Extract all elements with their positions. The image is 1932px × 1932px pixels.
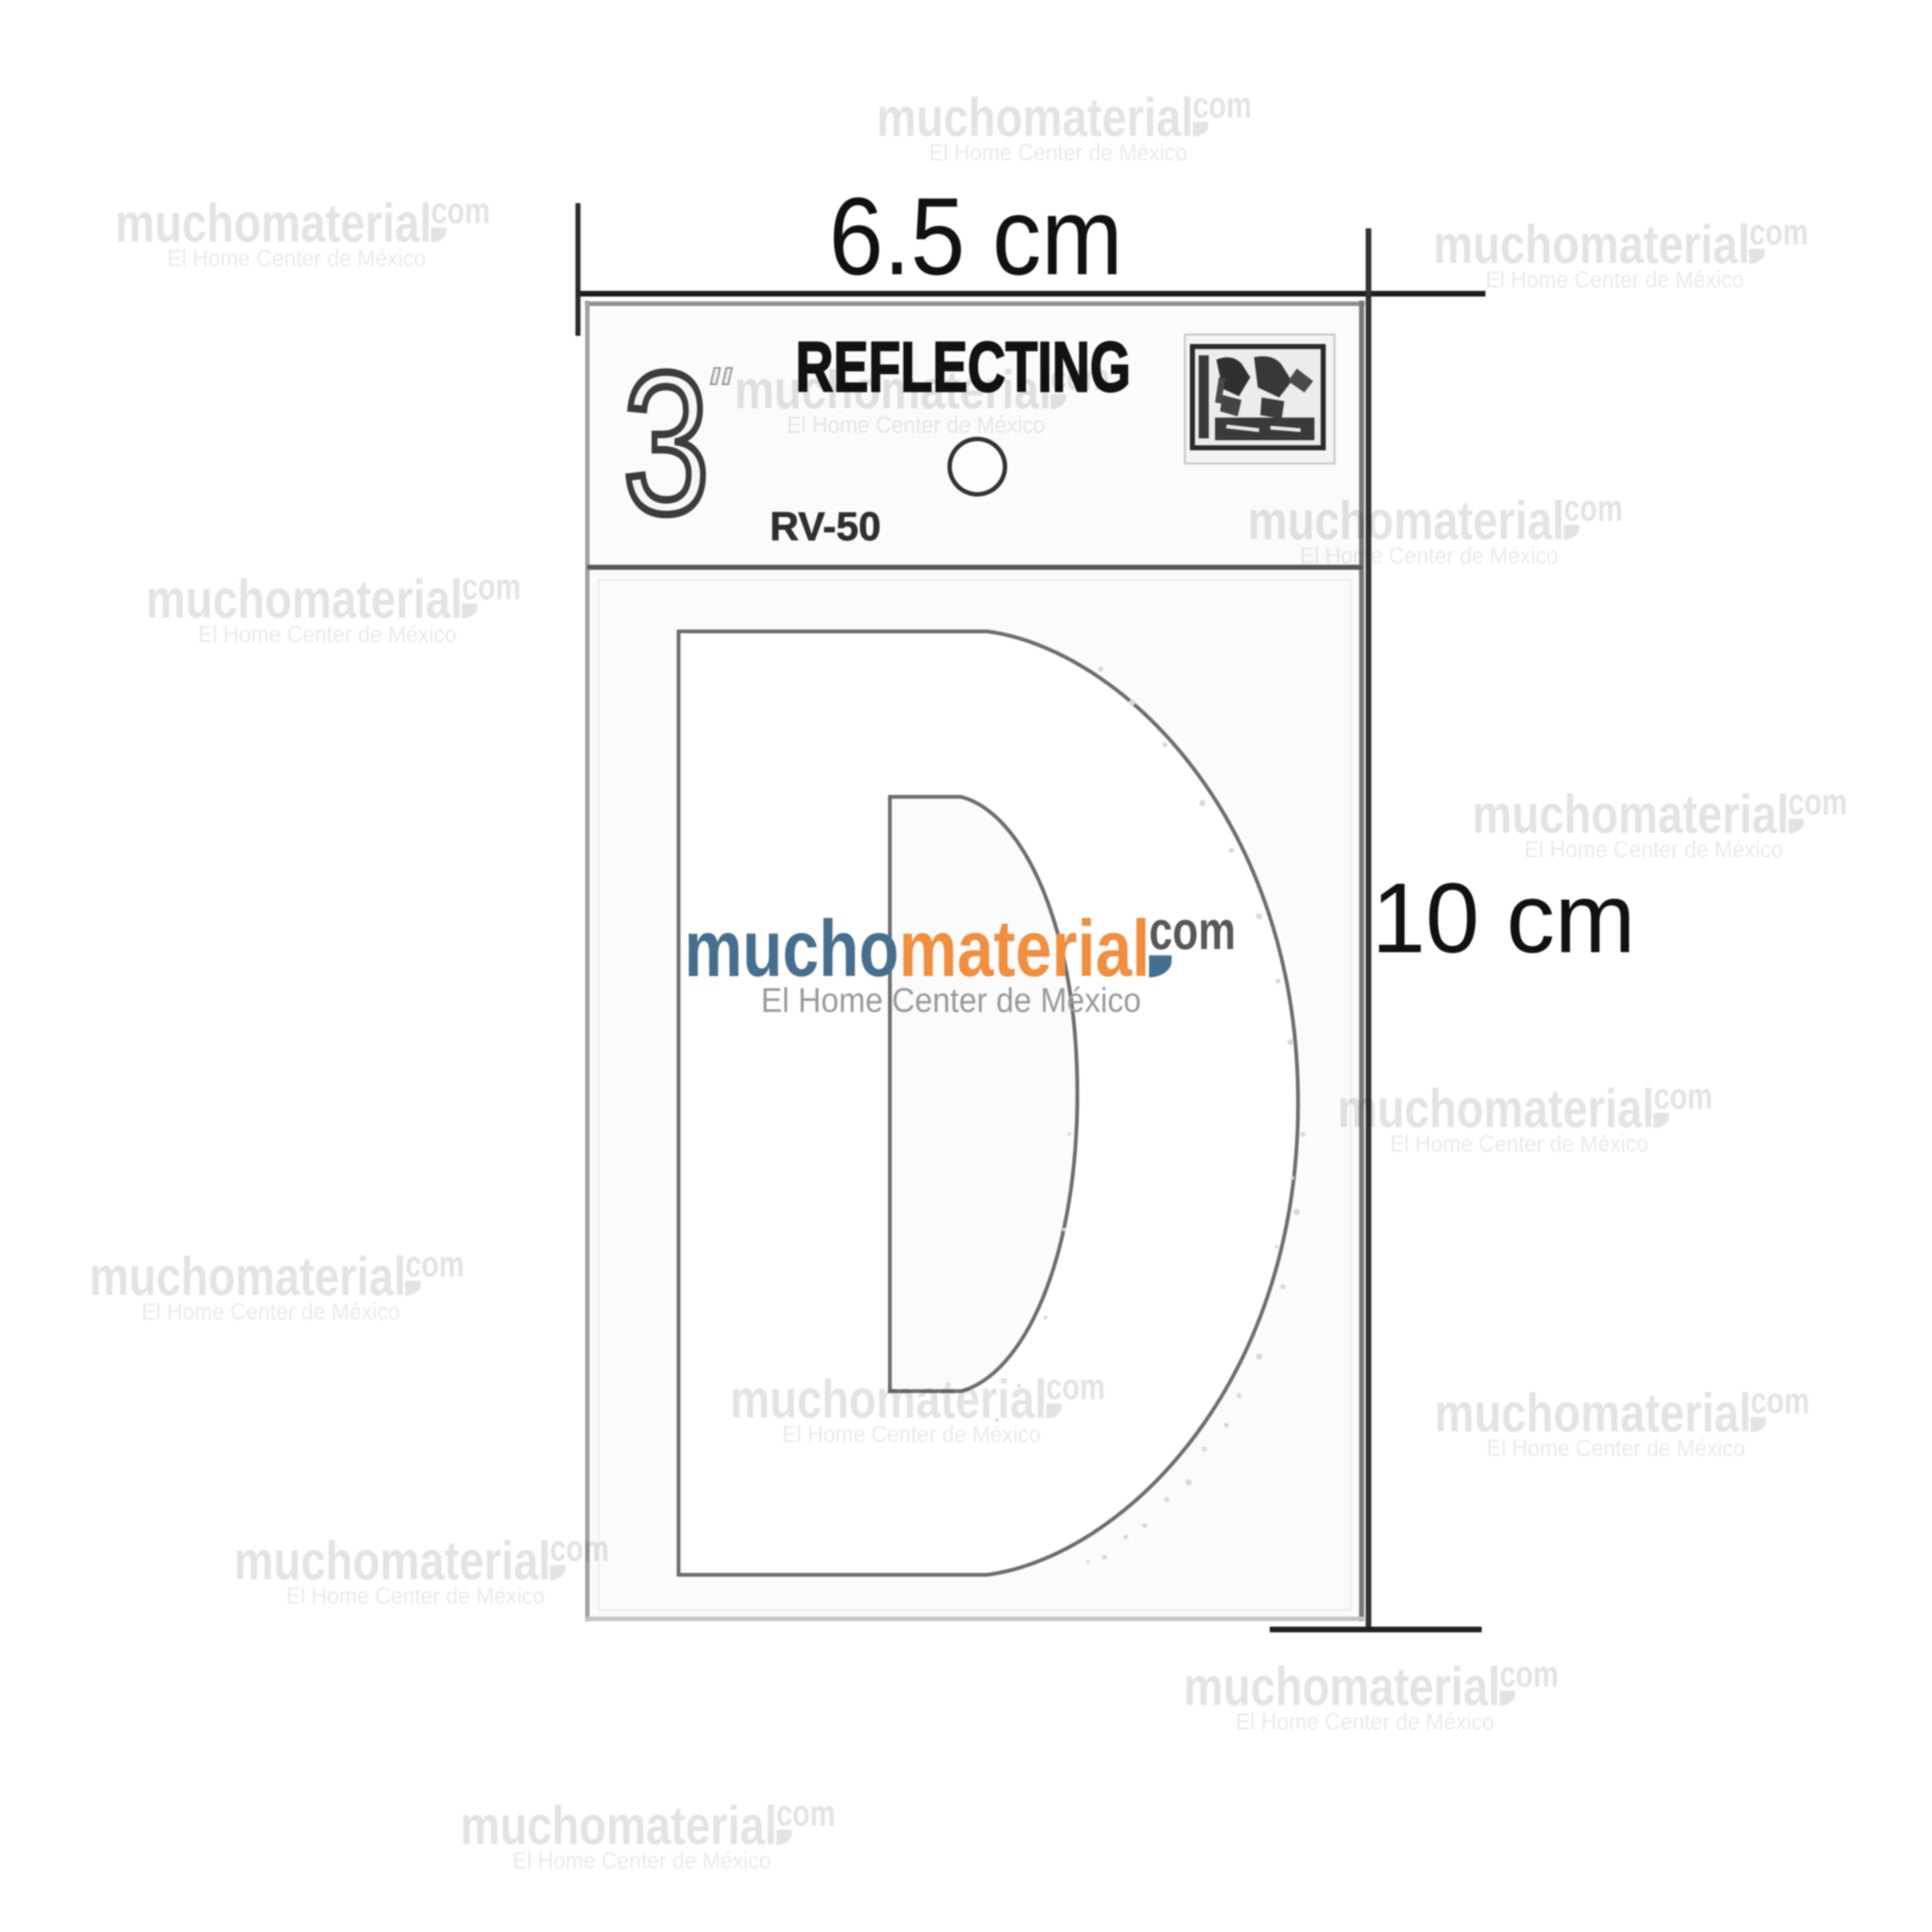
svg-text:El Home Center de México: El Home Center de México (1485, 265, 1744, 292)
svg-text:El Home Center de México: El Home Center de México (1300, 541, 1558, 569)
svg-text:com: com (462, 567, 521, 608)
svg-text:com: com (1500, 1654, 1559, 1695)
svg-text:El Home Center de México: El Home Center de México (167, 244, 426, 271)
svg-text:com: com (777, 1793, 836, 1834)
svg-text:El Home Center de México: El Home Center de México (1236, 1707, 1494, 1735)
svg-text:com: com (1654, 1076, 1713, 1117)
svg-text:El Home Center de México: El Home Center de México (761, 981, 1141, 1019)
svg-text:3: 3 (623, 330, 710, 555)
svg-text:El Home Center de México: El Home Center de México (513, 1846, 771, 1874)
svg-text:El Home Center de México: El Home Center de México (142, 1297, 400, 1324)
svg-text:El Home Center de México: El Home Center de México (1524, 835, 1783, 862)
svg-text:El Home Center de México: El Home Center de México (1390, 1130, 1648, 1157)
svg-text:com: com (1789, 782, 1848, 823)
svg-text:com: com (431, 191, 491, 231)
svg-text:com: com (1193, 85, 1252, 126)
svg-text:muchomaterial: muchomaterial (684, 904, 1150, 993)
svg-text:6.5 cm: 6.5 cm (829, 175, 1123, 298)
svg-text:El Home Center de México: El Home Center de México (787, 411, 1045, 438)
svg-text:com: com (1750, 212, 1809, 253)
svg-text:com: com (1046, 1367, 1106, 1407)
svg-text:com: com (550, 1528, 609, 1569)
svg-text:El Home Center de México: El Home Center de México (782, 1420, 1041, 1447)
svg-text:com: com (1564, 488, 1623, 529)
svg-text:El Home Center de México: El Home Center de México (198, 620, 457, 647)
svg-text:El Home Center de México: El Home Center de México (286, 1582, 545, 1609)
svg-text:RV-50: RV-50 (770, 504, 881, 549)
svg-text:com: com (406, 1244, 465, 1285)
svg-text:El Home Center de México: El Home Center de México (929, 138, 1187, 165)
svg-text:com: com (1051, 357, 1110, 398)
svg-text:com: com (1149, 901, 1236, 961)
svg-text:El Home Center de México: El Home Center de México (1487, 1434, 1745, 1461)
svg-text:10 cm: 10 cm (1372, 863, 1635, 974)
svg-text:com: com (1751, 1380, 1810, 1421)
